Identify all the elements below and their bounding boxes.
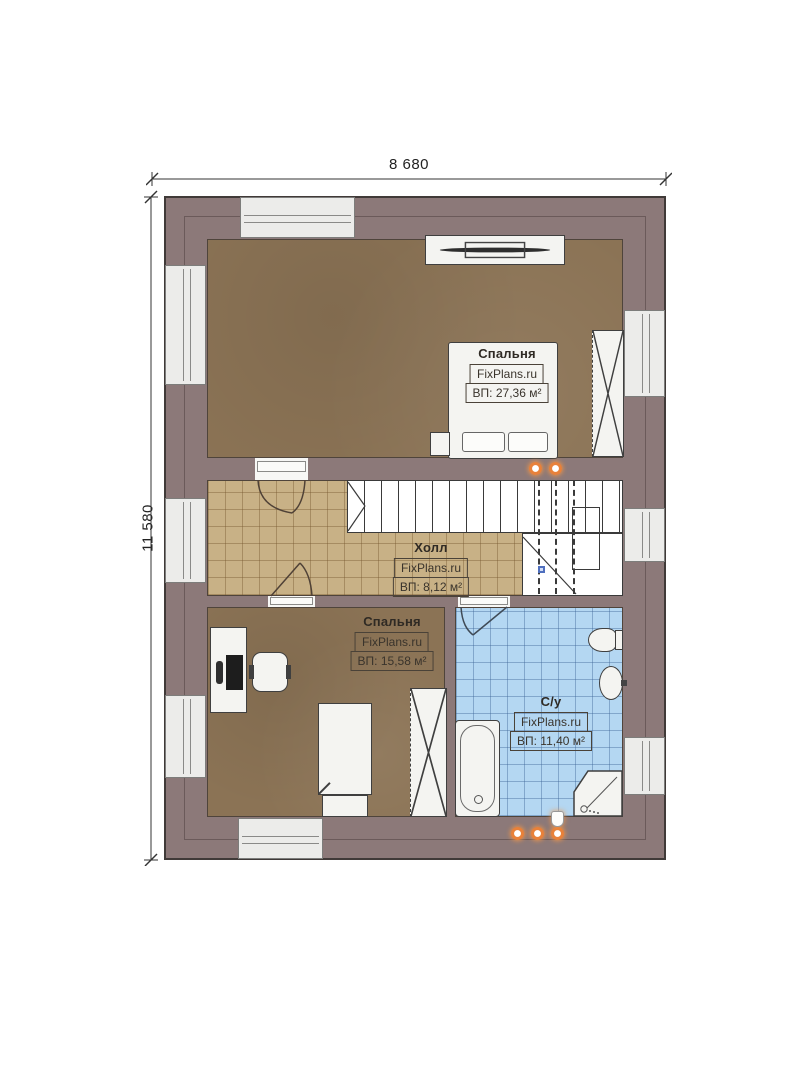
room-name: Холл — [414, 540, 447, 555]
watermark: FixPlans.ru — [355, 632, 429, 652]
dimension-top-label: 8 680 — [389, 156, 429, 173]
shower-icon — [573, 770, 623, 817]
room-area: ВП: 8,12 м² — [393, 577, 469, 597]
chair-armrest — [286, 665, 291, 679]
bed-single-pillow — [322, 795, 368, 817]
chair-armrest — [249, 665, 254, 679]
window-left-3 — [165, 695, 206, 778]
spot-light-icon — [549, 462, 562, 475]
window-left-1 — [165, 265, 206, 385]
watermark: FixPlans.ru — [514, 712, 588, 732]
tv-stand — [425, 235, 565, 265]
spot-light-icon — [529, 462, 542, 475]
wardrobe-top-bedroom — [592, 330, 624, 457]
toilet-tank — [615, 630, 623, 650]
spot-light-icon — [511, 827, 524, 840]
window-frame — [242, 836, 319, 844]
room-area: ВП: 27,36 м² — [466, 383, 549, 403]
window-left-2 — [165, 498, 206, 583]
window-frame — [642, 512, 650, 558]
window-bottom — [238, 818, 323, 859]
stairs-marker-square — [538, 566, 545, 573]
window-frame — [183, 502, 191, 579]
watermark: FixPlans.ru — [394, 558, 468, 578]
dimension-left: 11 580 — [130, 190, 164, 866]
bathtub — [455, 720, 500, 817]
watermark: FixPlans.ru — [470, 364, 544, 384]
room-name: Спальня — [478, 346, 536, 361]
door-leaf — [460, 597, 508, 605]
bed-single — [318, 703, 372, 795]
window-frame — [642, 314, 650, 393]
room-bedroom-top-floor — [207, 239, 623, 458]
faucet-icon — [551, 811, 564, 827]
room-name: Спальня — [363, 614, 421, 629]
floor-plan-page: 8 680 11 580 — [0, 0, 792, 1080]
pillow — [508, 432, 548, 452]
stairs-dashed-line — [538, 480, 540, 594]
spot-light-icon — [531, 827, 544, 840]
desk — [210, 627, 247, 713]
window-frame — [183, 699, 191, 774]
window-right-2 — [624, 508, 665, 562]
tv-icon — [426, 236, 564, 264]
room-name: С/у — [541, 694, 562, 709]
window-top — [240, 197, 355, 238]
room-area: ВП: 11,40 м² — [510, 731, 592, 751]
keyboard-icon — [216, 661, 223, 684]
spot-light-icon — [551, 827, 564, 840]
sink-tap-icon — [621, 680, 627, 686]
room-area: ВП: 15,58 м² — [351, 651, 434, 671]
floor-plan: Спальня FixPlans.ru ВП: 27,36 м² Холл Fi… — [164, 196, 666, 860]
stairs-railing — [572, 507, 600, 570]
window-right-1 — [624, 310, 665, 397]
bathtub-drain-icon — [474, 795, 483, 804]
shower-corner — [573, 770, 623, 817]
window-frame — [642, 741, 650, 791]
wardrobe-bottom-bedroom — [410, 688, 447, 817]
wardrobe-cross-icon — [411, 689, 446, 816]
sink — [599, 666, 623, 700]
stairs-dashed-line — [555, 480, 557, 594]
door-leaf — [270, 597, 313, 605]
room-label-bathroom: С/у FixPlans.ru ВП: 11,40 м² — [510, 694, 592, 751]
blanket-fold — [318, 782, 330, 794]
pillow — [462, 432, 505, 452]
nightstand — [430, 432, 450, 456]
computer-monitor-icon — [226, 655, 243, 690]
window-right-3 — [624, 737, 665, 795]
window-frame — [183, 269, 191, 381]
dimension-top: 8 680 — [146, 156, 672, 186]
office-chair — [252, 652, 288, 692]
stairs-dashed-line — [573, 480, 575, 594]
wardrobe-cross-icon — [593, 331, 623, 456]
door-leaf — [257, 461, 306, 472]
toilet-bowl — [588, 628, 617, 652]
room-label-bedroom-bottom: Спальня FixPlans.ru ВП: 15,58 м² — [351, 614, 434, 671]
dimension-left-label: 11 580 — [139, 504, 156, 552]
room-label-bedroom-top: Спальня FixPlans.ru ВП: 27,36 м² — [466, 346, 549, 403]
room-label-hall: Холл FixPlans.ru ВП: 8,12 м² — [393, 540, 469, 597]
window-frame — [244, 215, 351, 223]
